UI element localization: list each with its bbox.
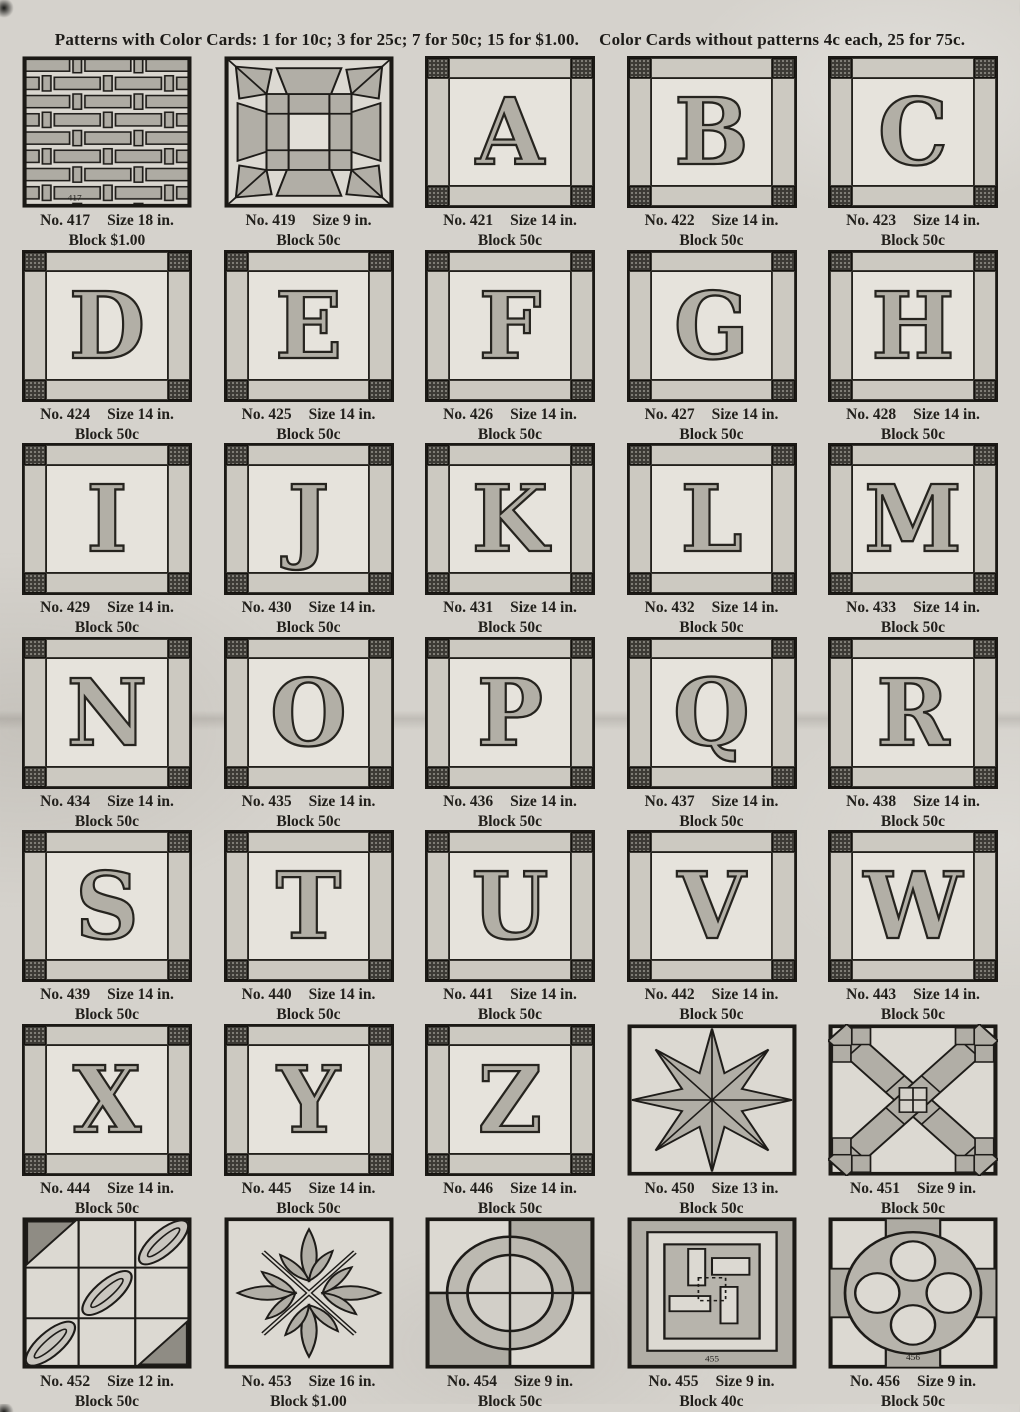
letter-patch: Z [478,1054,542,1146]
block-caption: No. 453 Size 16 in. Block $1.00 [242,1372,376,1412]
border-strip [629,658,651,766]
border-strip [449,252,570,272]
block-number: No. 455 [649,1372,699,1392]
block-number: No. 438 [846,792,896,812]
letter-patch: P [477,667,543,759]
block-number: No. 452 [40,1372,90,1392]
corner-patch [772,445,794,465]
corner-patch [772,832,794,852]
block-price: Block 50c [850,1199,976,1219]
block-caption: No. 426 Size 14 in. Block 50c [443,405,577,445]
corner-patch [24,380,46,400]
block-number: No. 456 [850,1372,900,1392]
letter-quilt-block: L [627,443,797,595]
border-strip [974,852,996,960]
border-strip [226,1045,248,1153]
block-number: No. 419 [246,211,296,231]
pattern-cell: R No. 438 Size 14 in. Block 50c [828,637,998,831]
border-strip [772,852,794,960]
pattern-cell: G No. 427 Size 14 in. Block 50c [627,250,797,444]
block-size: Size 14 in. [712,598,779,618]
block-caption: No. 440 Size 14 in. Block 50c [242,985,376,1025]
block-caption: No. 428 Size 14 in. Block 50c [846,405,980,445]
block-art: Q [627,637,797,789]
block-price: Block 50c [40,1199,174,1219]
letter-patch-area: E [248,271,369,379]
pattern-cell: No. 419 Size 9 in. Block 50c [224,56,394,250]
border-strip [449,767,570,787]
block-size: Size 14 in. [712,985,779,1005]
corner-patch [226,960,248,980]
letter-patch-area: T [248,852,369,960]
border-strip [168,658,190,766]
corner-patch [974,767,996,787]
block-art: O [224,637,394,789]
star-quilt-block-graphic [224,56,394,208]
letter-patch-area: R [852,658,973,766]
block-price: Block 50c [846,812,980,832]
catalog-page: Patterns with Color Cards: 1 for 10c; 3 … [0,0,1020,1411]
corner-patch [830,832,852,852]
block-art [22,1217,192,1369]
border-strip [852,58,973,78]
border-strip [651,252,772,272]
border-strip [651,639,772,659]
corner-patch [629,832,651,852]
border-strip [449,573,570,593]
block-price: Block 50c [40,1392,174,1412]
corner-patch [369,639,391,659]
block-art [828,1024,998,1176]
leaf-cross-block-graphic [224,1217,394,1369]
block-price: Block 50c [242,1199,376,1219]
corner-patch [629,639,651,659]
corner-patch [427,960,449,980]
block-size: Size 9 in. [917,1372,976,1392]
block-size: Size 13 in. [712,1179,779,1199]
corner-patch [571,1154,593,1174]
letter-quilt-block: W [828,830,998,982]
block-number: No. 450 [645,1179,695,1199]
corner-patch [629,252,651,272]
corner-patch [571,573,593,593]
border-strip [226,852,248,960]
letter-patch: U [472,860,549,952]
corner-patch [226,1026,248,1046]
block-size: Size 14 in. [913,792,980,812]
letter-patch-area: S [46,852,167,960]
letter-patch-area: A [449,78,570,186]
border-strip [449,186,570,206]
corner-patch [571,1026,593,1046]
corner-patch [974,186,996,206]
letter-patch-area: P [449,658,570,766]
pattern-cell: Y No. 445 Size 14 in. Block 50c [224,1024,394,1218]
block-caption: No. 432 Size 14 in. Block 50c [645,598,779,638]
block-price: Block 50c [645,618,779,638]
block-price: Block 50c [242,812,376,832]
border-strip [46,767,167,787]
corner-patch [24,1026,46,1046]
border-strip [651,960,772,980]
corner-patch [772,186,794,206]
letter-patch-area: L [651,465,772,573]
corner-patch [571,58,593,78]
letter-quilt-block: Z [425,1024,595,1176]
block-art: 417 [22,56,192,208]
letter-patch: B [674,86,748,178]
border-strip [248,445,369,465]
border-strip [46,960,167,980]
letter-patch-area: Q [651,658,772,766]
block-caption: No. 429 Size 14 in. Block 50c [40,598,174,638]
letter-patch-area: C [852,78,973,186]
corner-patch [24,252,46,272]
pattern-cell: No. 450 Size 13 in. Block 50c [627,1024,797,1218]
block-art: N [22,637,192,789]
border-strip [852,445,973,465]
border-strip [24,658,46,766]
block-size: Size 14 in. [510,1179,577,1199]
letter-patch: Y [277,1054,340,1146]
border-strip [248,639,369,659]
border-strip [248,767,369,787]
corner-patch [571,186,593,206]
border-strip [168,1045,190,1153]
border-strip [852,832,973,852]
letter-patch: G [674,280,749,372]
border-strip [449,58,570,78]
corner-patch [168,1154,190,1174]
letter-quilt-block: K [425,443,595,595]
letter-patch-area: W [852,852,973,960]
letter-patch-area: M [852,465,973,573]
pattern-cell: J No. 430 Size 14 in. Block 50c [224,443,394,637]
pattern-cell: 455 No. 455 Size 9 in. Block 40c [627,1217,797,1411]
pattern-cell: H No. 428 Size 14 in. Block 50c [828,250,998,444]
block-caption: No. 422 Size 14 in. Block 50c [645,211,779,251]
block-art: 455 [627,1217,797,1369]
letter-patch: E [275,280,342,372]
corner-patch [369,252,391,272]
pattern-cell: D No. 424 Size 14 in. Block 50c [22,250,192,444]
block-number: No. 451 [850,1179,900,1199]
block-number: No. 435 [242,792,292,812]
block-caption: No. 450 Size 13 in. Block 50c [645,1179,779,1219]
block-art: E [224,250,394,402]
letter-patch: A [476,86,544,178]
block-art: U [425,830,595,982]
border-strip [852,380,973,400]
corner-patch [830,380,852,400]
letter-quilt-block: C [828,56,998,208]
letter-patch-area: G [651,271,772,379]
block-price: Block 50c [645,812,779,832]
corner-patch [427,639,449,659]
border-strip [651,573,772,593]
corner-patch [571,445,593,465]
corner-patch [168,960,190,980]
border-strip [248,1154,369,1174]
corner-patch [168,380,190,400]
border-strip [772,658,794,766]
block-size: Size 18 in. [107,211,174,231]
block-art: F [425,250,595,402]
block-price: Block 50c [645,1199,779,1219]
corner-patch [974,573,996,593]
ring-four-patch-block-graphic [425,1217,595,1369]
pattern-cell: L No. 432 Size 14 in. Block 50c [627,443,797,637]
border-strip [369,1045,391,1153]
block-art: M [828,443,998,595]
block-price: Block 50c [40,1005,174,1025]
block-price: Block 50c [443,1199,577,1219]
letter-quilt-block: H [828,250,998,402]
letter-quilt-block: Y [224,1024,394,1176]
letter-patch: I [86,473,127,565]
block-caption: No. 423 Size 14 in. Block 50c [846,211,980,251]
corner-patch [830,639,852,659]
pattern-cell: O No. 435 Size 14 in. Block 50c [224,637,394,831]
corner-patch [369,445,391,465]
border-strip [974,465,996,573]
corner-patch [629,767,651,787]
border-strip [449,445,570,465]
border-strip [46,573,167,593]
border-strip [369,271,391,379]
border-strip [369,852,391,960]
corner-patch [974,960,996,980]
border-strip [24,271,46,379]
block-number: No. 443 [846,985,896,1005]
corner-patch [24,639,46,659]
block-price: Block 50c [40,812,174,832]
block-caption: No. 436 Size 14 in. Block 50c [443,792,577,832]
border-strip [830,465,852,573]
corner-patch [571,380,593,400]
pattern-cell: 417 No. 417 Size 18 in. Block $1.00 [22,56,192,250]
border-strip [772,78,794,186]
pattern-cell: No. 454 Size 9 in. Block 50c [425,1217,595,1411]
corner-patch [427,832,449,852]
block-art: X [22,1024,192,1176]
corner-patch [24,1154,46,1174]
block-number: No. 422 [645,211,695,231]
block-size: Size 14 in. [309,792,376,812]
letter-quilt-block: J [224,443,394,595]
border-strip [772,465,794,573]
letter-quilt-block: F [425,250,595,402]
block-size: Size 14 in. [107,985,174,1005]
block-art: 456 [828,1217,998,1369]
corner-patch [830,58,852,78]
block-caption: No. 446 Size 14 in. Block 50c [443,1179,577,1219]
block-size: Size 14 in. [712,405,779,425]
block-inset-number: 417 [68,193,83,202]
block-size: Size 14 in. [712,211,779,231]
letter-quilt-block: G [627,250,797,402]
letter-patch: V [677,860,745,952]
block-number: No. 417 [40,211,90,231]
block-caption: No. 439 Size 14 in. Block 50c [40,985,174,1025]
corner-patch [830,573,852,593]
block-price: Block 50c [846,1005,980,1025]
corner-patch [226,767,248,787]
block-size: Size 14 in. [510,598,577,618]
block-art: D [22,250,192,402]
corner-patch [830,445,852,465]
letter-patch: Q [673,667,750,759]
letter-patch: F [479,280,541,372]
corner-patch [629,58,651,78]
corner-patch [772,573,794,593]
border-strip [449,380,570,400]
block-number: No. 441 [443,985,493,1005]
letter-patch-area: O [248,658,369,766]
block-size: Size 14 in. [309,1179,376,1199]
corner-patch [369,573,391,593]
border-strip [248,960,369,980]
block-size: Size 14 in. [107,1179,174,1199]
border-strip [427,78,449,186]
block-number: No. 421 [443,211,493,231]
corner-patch [571,639,593,659]
border-strip [830,658,852,766]
block-size: Size 14 in. [913,598,980,618]
pattern-cell: C No. 423 Size 14 in. Block 50c [828,56,998,250]
corner-patch [974,58,996,78]
block-number: No. 454 [447,1372,497,1392]
letter-patch: W [864,860,963,952]
block-price: Block 50c [443,425,577,445]
letter-patch-area: I [46,465,167,573]
block-caption: No. 437 Size 14 in. Block 50c [645,792,779,832]
corner-patch [830,252,852,272]
block-number: No. 436 [443,792,493,812]
border-strip [24,852,46,960]
corner-patch [974,380,996,400]
block-price: Block 50c [443,1005,577,1025]
price-header-patterns: Patterns with Color Cards: 1 for 10c; 3 … [55,30,579,49]
pattern-cell: P No. 436 Size 14 in. Block 50c [425,637,595,831]
block-size: Size 14 in. [913,211,980,231]
letter-quilt-block: Q [627,637,797,789]
letter-patch: L [681,473,743,565]
corner-patch [772,767,794,787]
corner-patch [629,380,651,400]
letter-patch-area: K [449,465,570,573]
border-strip [46,832,167,852]
block-art: J [224,443,394,595]
block-size: Size 14 in. [510,405,577,425]
corner-patch [427,186,449,206]
border-strip [449,832,570,852]
border-strip [369,465,391,573]
block-art: S [22,830,192,982]
block-caption: No. 434 Size 14 in. Block 50c [40,792,174,832]
border-strip [772,271,794,379]
corner-patch [369,1026,391,1046]
block-caption: No. 455 Size 9 in. Block 40c [649,1372,775,1412]
block-caption: No. 444 Size 14 in. Block 50c [40,1179,174,1219]
block-size: Size 14 in. [309,985,376,1005]
block-art: C [828,56,998,208]
pattern-cell: Z No. 446 Size 14 in. Block 50c [425,1024,595,1218]
block-price: Block 50c [645,231,779,251]
block-number: No. 439 [40,985,90,1005]
border-strip [651,58,772,78]
block-number: No. 432 [645,598,695,618]
pattern-cell: X No. 444 Size 14 in. Block 50c [22,1024,192,1218]
border-strip [571,852,593,960]
border-strip [168,852,190,960]
block-art [627,1024,797,1176]
block-size: Size 14 in. [107,598,174,618]
border-strip [852,767,973,787]
corner-patch [974,639,996,659]
block-number: No. 425 [242,405,292,425]
block-price: Block $1.00 [242,1392,376,1412]
corner-patch [168,767,190,787]
block-price: Block 50c [846,231,980,251]
block-caption: No. 441 Size 14 in. Block 50c [443,985,577,1025]
border-strip [852,252,973,272]
quatrefoil-block-graphic: 456 [828,1217,998,1369]
block-price: Block 50c [246,231,372,251]
block-price: Block 50c [242,425,376,445]
border-strip [974,271,996,379]
border-strip [168,465,190,573]
block-art: Z [425,1024,595,1176]
border-strip [651,186,772,206]
pattern-cell: S No. 439 Size 14 in. Block 50c [22,830,192,1024]
letter-quilt-block: I [22,443,192,595]
block-size: Size 9 in. [312,211,371,231]
block-price: Block 50c [645,425,779,445]
border-strip [226,465,248,573]
border-strip [571,1045,593,1153]
corner-patch [369,960,391,980]
pattern-cell: A No. 421 Size 14 in. Block 50c [425,56,595,250]
letter-patch: N [67,667,147,759]
block-number: No. 440 [242,985,292,1005]
corner-patch [369,767,391,787]
block-number: No. 453 [242,1372,292,1392]
block-caption: No. 435 Size 14 in. Block 50c [242,792,376,832]
corner-patch [226,445,248,465]
border-strip [852,186,973,206]
letter-patch-area: X [46,1045,167,1153]
border-strip [248,380,369,400]
border-strip [830,78,852,186]
pattern-cell: W No. 443 Size 14 in. Block 50c [828,830,998,1024]
letter-patch: C [878,86,948,178]
corner-patch [369,832,391,852]
block-caption: No. 451 Size 9 in. Block 50c [850,1179,976,1219]
border-strip [651,767,772,787]
corner-patch [830,186,852,206]
border-strip [24,465,46,573]
letter-quilt-block: R [828,637,998,789]
corner-patch [974,252,996,272]
block-art [224,1217,394,1369]
letter-quilt-block: M [828,443,998,595]
cable-nine-patch-block-graphic [22,1217,192,1369]
corner-patch [168,832,190,852]
corner-patch [369,1154,391,1174]
letter-quilt-block: B [627,56,797,208]
block-art: I [22,443,192,595]
